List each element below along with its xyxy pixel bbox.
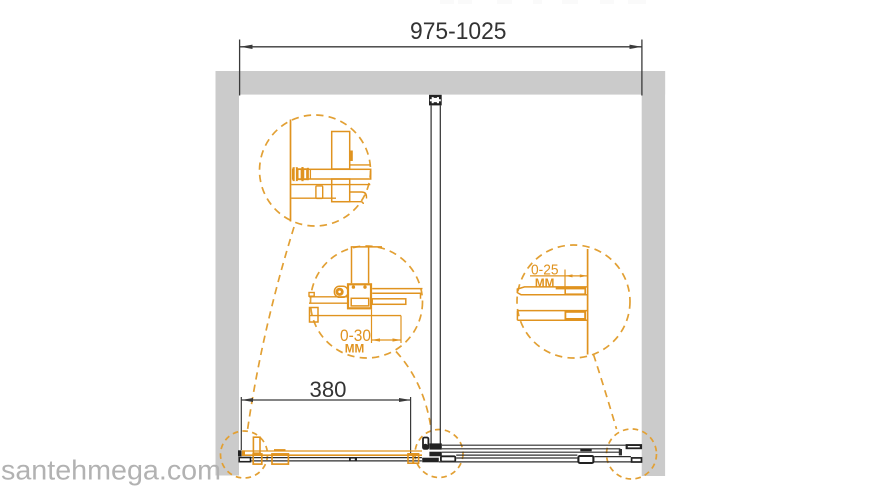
svg-text:MM: MM (535, 278, 555, 290)
svg-text:santehmega.com: santehmega.com (1, 455, 221, 486)
svg-text:0-25: 0-25 (531, 261, 559, 278)
svg-text:MM: MM (345, 342, 365, 356)
svg-text:975-1025: 975-1025 (410, 18, 507, 45)
svg-text:380: 380 (310, 377, 347, 402)
